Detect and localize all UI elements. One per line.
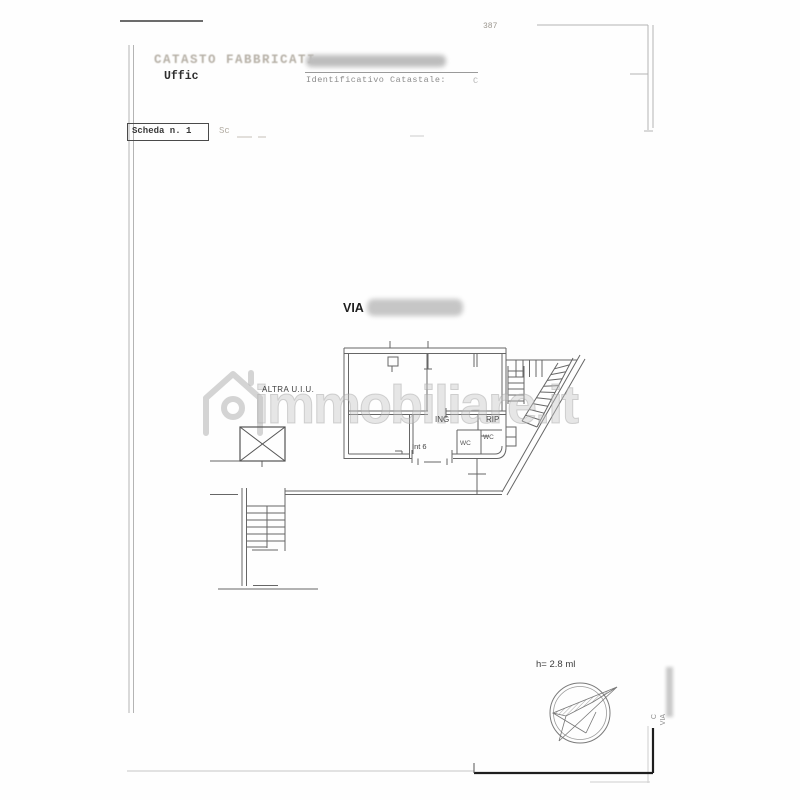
room-label-wc-right: WC	[483, 434, 494, 441]
room-label-ing: ING	[435, 415, 449, 424]
page-frame-bold-corner	[474, 728, 653, 773]
ceiling-height-note: h= 2.8 ml	[536, 659, 575, 670]
registry-title: CATASTO FABBRICATI	[154, 53, 316, 67]
watermark-house-icon	[206, 373, 260, 433]
identifier-stub: C	[473, 76, 478, 86]
room-label-wc-left: WC	[460, 440, 471, 447]
redacted-margin-bar	[666, 667, 673, 717]
north-arrow	[550, 683, 617, 743]
room-label-rip: RIP	[486, 415, 499, 424]
redacted-owner-bar	[306, 55, 446, 67]
sheet-number-label: Scheda n. 1	[132, 126, 191, 136]
corridor-and-annex	[210, 461, 502, 495]
floorplan-drawing	[0, 0, 800, 800]
identifier-label: Identificativo Catastale:	[306, 75, 446, 85]
margin-rotated-label-2: VIA	[660, 714, 667, 725]
office-label: Uffic	[164, 70, 199, 83]
staircase-right	[502, 354, 585, 495]
redacted-street-bar	[367, 299, 463, 316]
margin-rotated-label-1: C	[651, 714, 658, 719]
sheet-stub: Sc	[219, 126, 230, 136]
page-number: 387	[483, 22, 497, 31]
staircase-lower	[218, 488, 318, 589]
adjacent-unit-label: ALTRA U.I.U.	[262, 385, 314, 394]
unit-number-label: Int 6	[412, 442, 427, 451]
street-label: VIA	[343, 301, 364, 315]
cadastral-plan-sheet: immobiliare.it 387 CATASTO FABBRICATI Uf…	[0, 0, 800, 800]
